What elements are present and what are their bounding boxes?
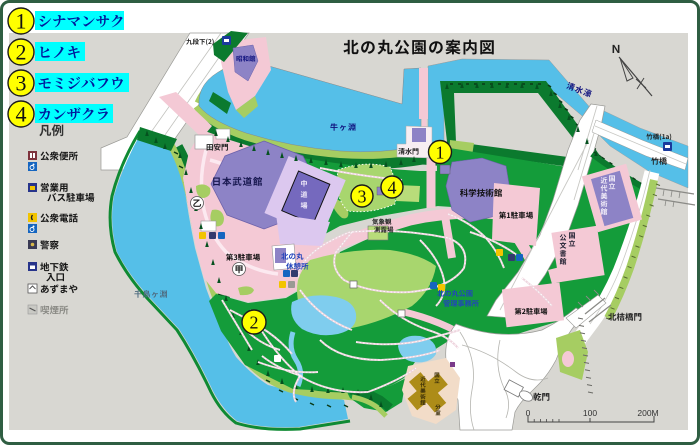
svg-text:200M: 200M xyxy=(637,408,658,418)
svg-text:1: 1 xyxy=(436,142,445,162)
svg-text:4: 4 xyxy=(388,177,397,197)
svg-text:4: 4 xyxy=(16,102,27,127)
svg-text:2: 2 xyxy=(16,40,27,65)
svg-text:2: 2 xyxy=(250,312,259,332)
svg-text:100: 100 xyxy=(583,408,597,418)
svg-text:3: 3 xyxy=(358,186,367,206)
svg-text:0: 0 xyxy=(526,408,531,418)
svg-text:3: 3 xyxy=(16,71,27,96)
svg-text:1: 1 xyxy=(16,9,27,34)
